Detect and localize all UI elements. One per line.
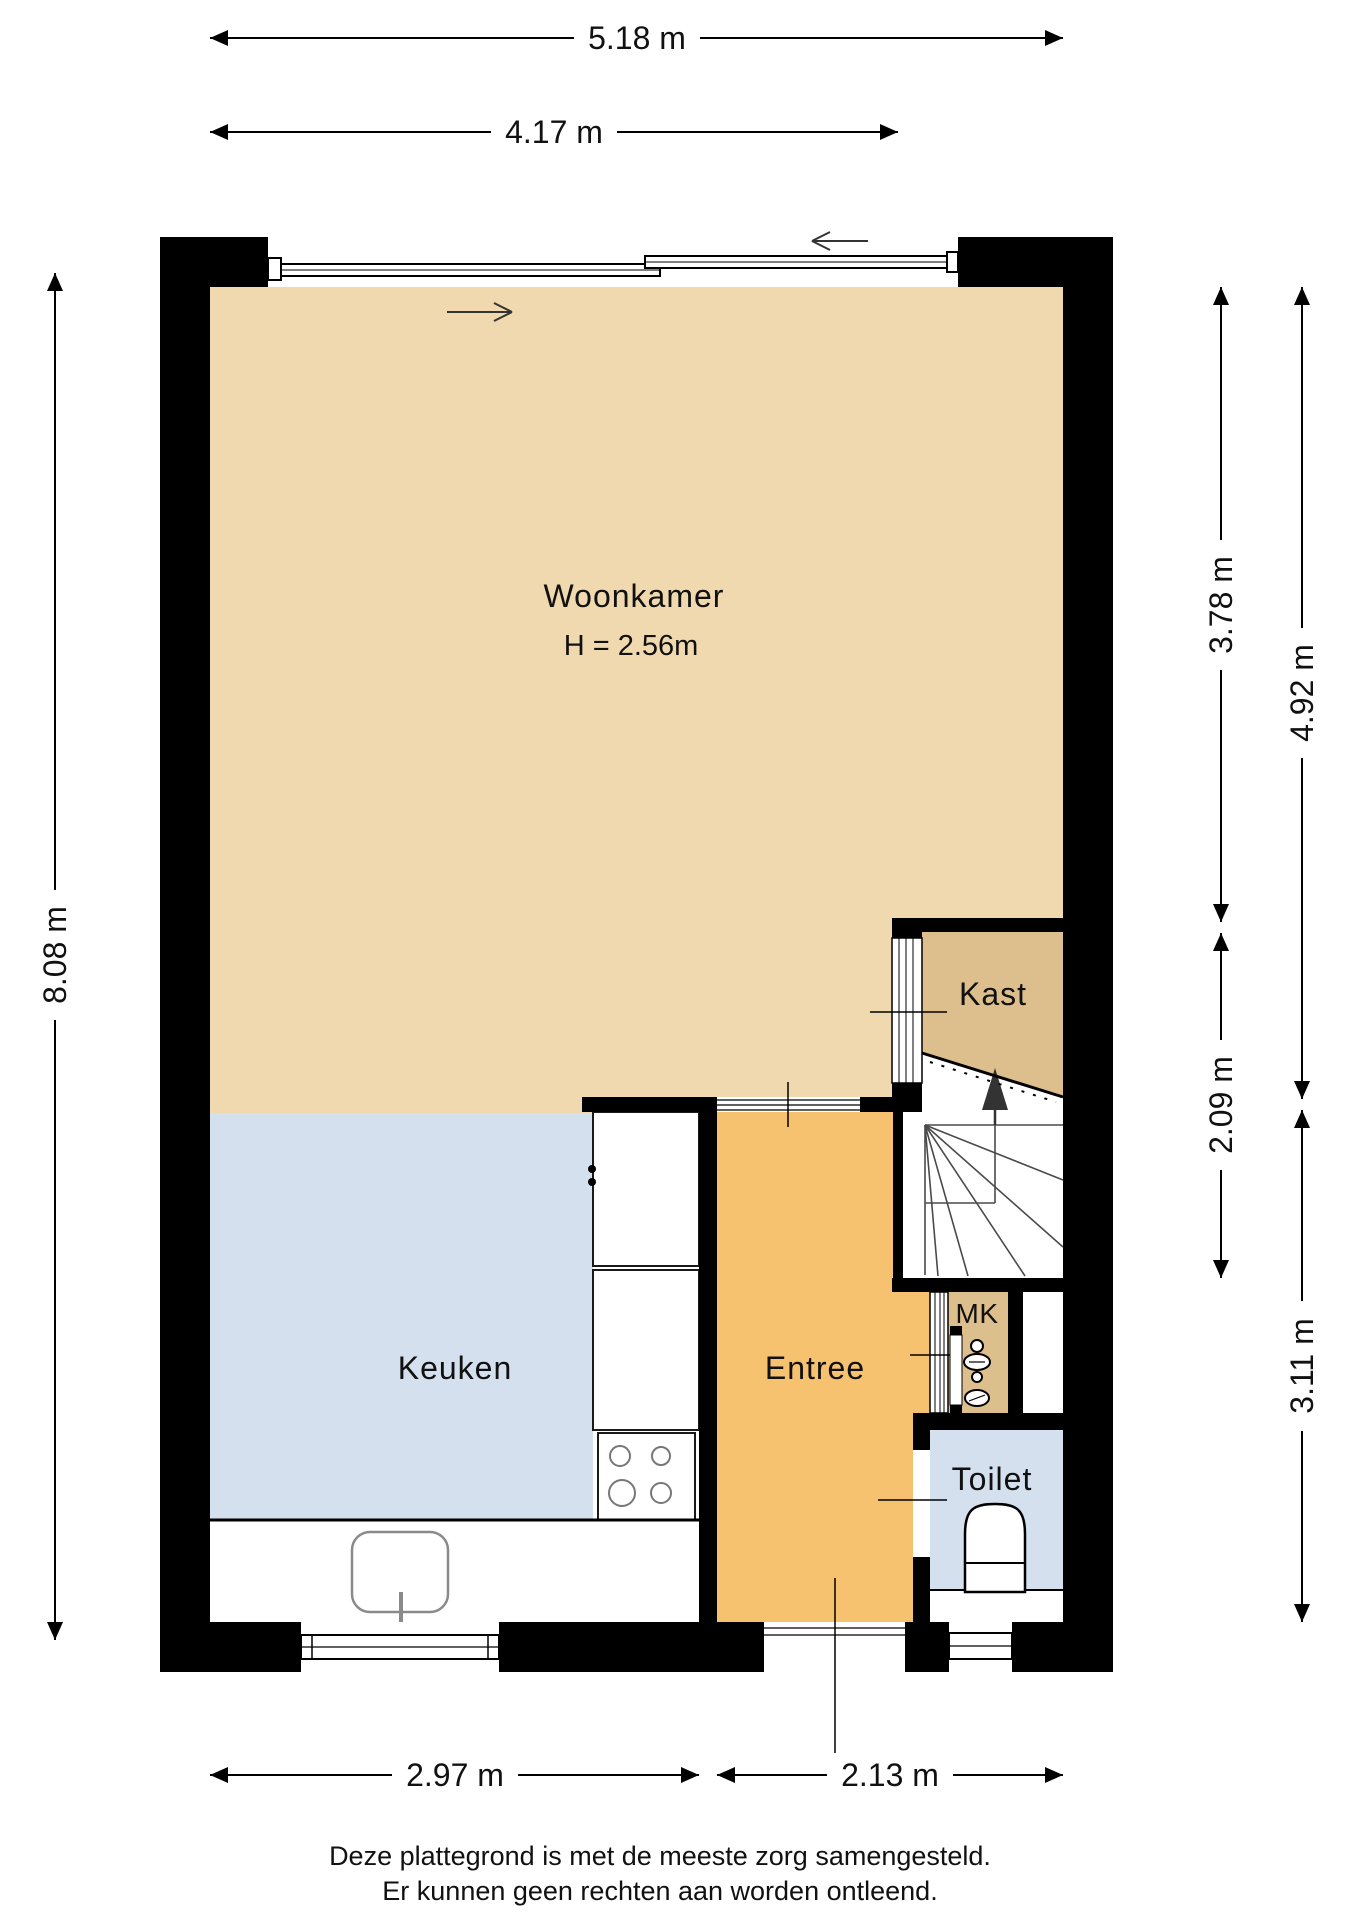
floor-plan-canvas: 5.18 m 4.17 m 8.08 m 3.7: [0, 0, 1358, 1920]
slide-arrow-left-icon: [812, 241, 830, 250]
dim-label-right-inner-mid: 2.09 m: [1203, 1056, 1239, 1154]
dim-arrowhead: [210, 1767, 228, 1783]
mk-panel-cap: [950, 1405, 962, 1414]
dim-arrowhead: [717, 1767, 735, 1783]
kitchen-cabinet-lower: [593, 1270, 699, 1430]
wall-mk-right: [1008, 1292, 1023, 1413]
dim-arrowhead: [1294, 1110, 1310, 1128]
dim-arrowhead: [1045, 30, 1063, 46]
dim-left-total: 8.08 m: [33, 273, 77, 1640]
room-keuken-floor: [210, 1113, 593, 1520]
toilet-door-opening: [913, 1450, 930, 1557]
dim-arrowhead: [1045, 1767, 1063, 1783]
room-label-kast: Kast: [959, 976, 1027, 1012]
disclaimer-line-1: Deze plattegrond is met de meeste zorg s…: [329, 1841, 991, 1871]
room-label-woonkamer: Woonkamer: [544, 578, 725, 614]
dim-right-inner-upper: 3.78 m: [1199, 287, 1243, 922]
dim-bottom-entry: 2.13 m: [717, 1753, 1063, 1797]
room-entree-floor-upper: [717, 1112, 922, 1292]
dim-label-right-outer-upper: 4.92 m: [1284, 644, 1320, 742]
wall-stairs-bottom: [892, 1278, 1063, 1292]
meter-icon: [971, 1340, 983, 1352]
wall-top-left-block: [160, 237, 268, 287]
wall-keuken-stub: [582, 1097, 717, 1112]
dim-label-left-total: 8.08 m: [37, 906, 73, 1004]
dim-right-inner-mid: 2.09 m: [1199, 933, 1243, 1278]
window-frame-right: [947, 252, 958, 272]
floor-plan-page: 5.18 m 4.17 m 8.08 m 3.7: [0, 0, 1358, 1920]
room-label-mk: MK: [956, 1298, 999, 1329]
dim-bottom-kitchen: 2.97 m: [210, 1753, 699, 1797]
cabinet-hinge-dot: [588, 1178, 596, 1186]
dim-label-right-inner-upper: 3.78 m: [1203, 556, 1239, 654]
wall-stairs-left: [893, 1112, 903, 1278]
mk-panel: [950, 1335, 962, 1405]
dim-label-bottom-kitchen: 2.97 m: [406, 1757, 504, 1793]
mk-door: [930, 1292, 948, 1413]
disclaimer-line-2: Er kunnen geen rechten aan worden ontlee…: [382, 1876, 937, 1906]
window-frame-left: [268, 258, 281, 280]
dim-right-outer-upper: 4.92 m: [1280, 287, 1324, 1099]
dim-arrowhead: [1213, 933, 1229, 951]
wall-entree-stub: [860, 1097, 897, 1112]
toilet-bowl-icon: [965, 1504, 1025, 1592]
disclaimer: Deze plattegrond is met de meeste zorg s…: [329, 1841, 991, 1906]
wall-kast-top: [897, 918, 1063, 932]
room-entree-floor-lower: [717, 1292, 930, 1622]
dim-arrowhead: [1213, 287, 1229, 305]
wall-left: [160, 237, 210, 1672]
stove-unit: [598, 1433, 695, 1520]
room-label-entree: Entree: [765, 1350, 865, 1386]
wall-mk-bottom: [913, 1413, 1065, 1430]
dim-top-window: 4.17 m: [210, 110, 898, 154]
kast-door: [892, 938, 922, 1083]
dim-arrowhead: [1294, 287, 1310, 305]
dim-label-top-total: 5.18 m: [588, 20, 686, 56]
cabinet-hinge-dot: [588, 1165, 596, 1173]
slide-arrow-left-icon: [812, 232, 830, 241]
dim-label-bottom-entry: 2.13 m: [841, 1757, 939, 1793]
room-height-note: H = 2.56m: [564, 630, 699, 662]
wall-right: [1063, 237, 1113, 1672]
dim-right-outer-lower: 3.11 m: [1280, 1110, 1324, 1622]
dim-top-total: 5.18 m: [210, 16, 1063, 60]
dim-arrowhead: [880, 124, 898, 140]
room-label-toilet: Toilet: [952, 1461, 1033, 1497]
dim-arrowhead: [47, 273, 63, 291]
dim-arrowhead: [210, 124, 228, 140]
dim-arrowhead: [210, 30, 228, 46]
dim-arrowhead: [1294, 1081, 1310, 1099]
dim-arrowhead: [47, 1622, 63, 1640]
room-label-keuken: Keuken: [398, 1350, 513, 1386]
wall-keuken-entree-divider: [699, 1112, 717, 1672]
kitchen-cabinet-upper: [593, 1112, 699, 1266]
dim-arrowhead: [1213, 1260, 1229, 1278]
dim-arrowhead: [1294, 1604, 1310, 1622]
meter-icon: [972, 1372, 982, 1382]
toilet-window-sill: [930, 1590, 1063, 1622]
dim-arrowhead: [1213, 904, 1229, 922]
dim-label-right-outer-lower: 3.11 m: [1284, 1318, 1320, 1413]
dim-arrowhead: [681, 1767, 699, 1783]
dim-label-top-window: 4.17 m: [505, 114, 603, 150]
